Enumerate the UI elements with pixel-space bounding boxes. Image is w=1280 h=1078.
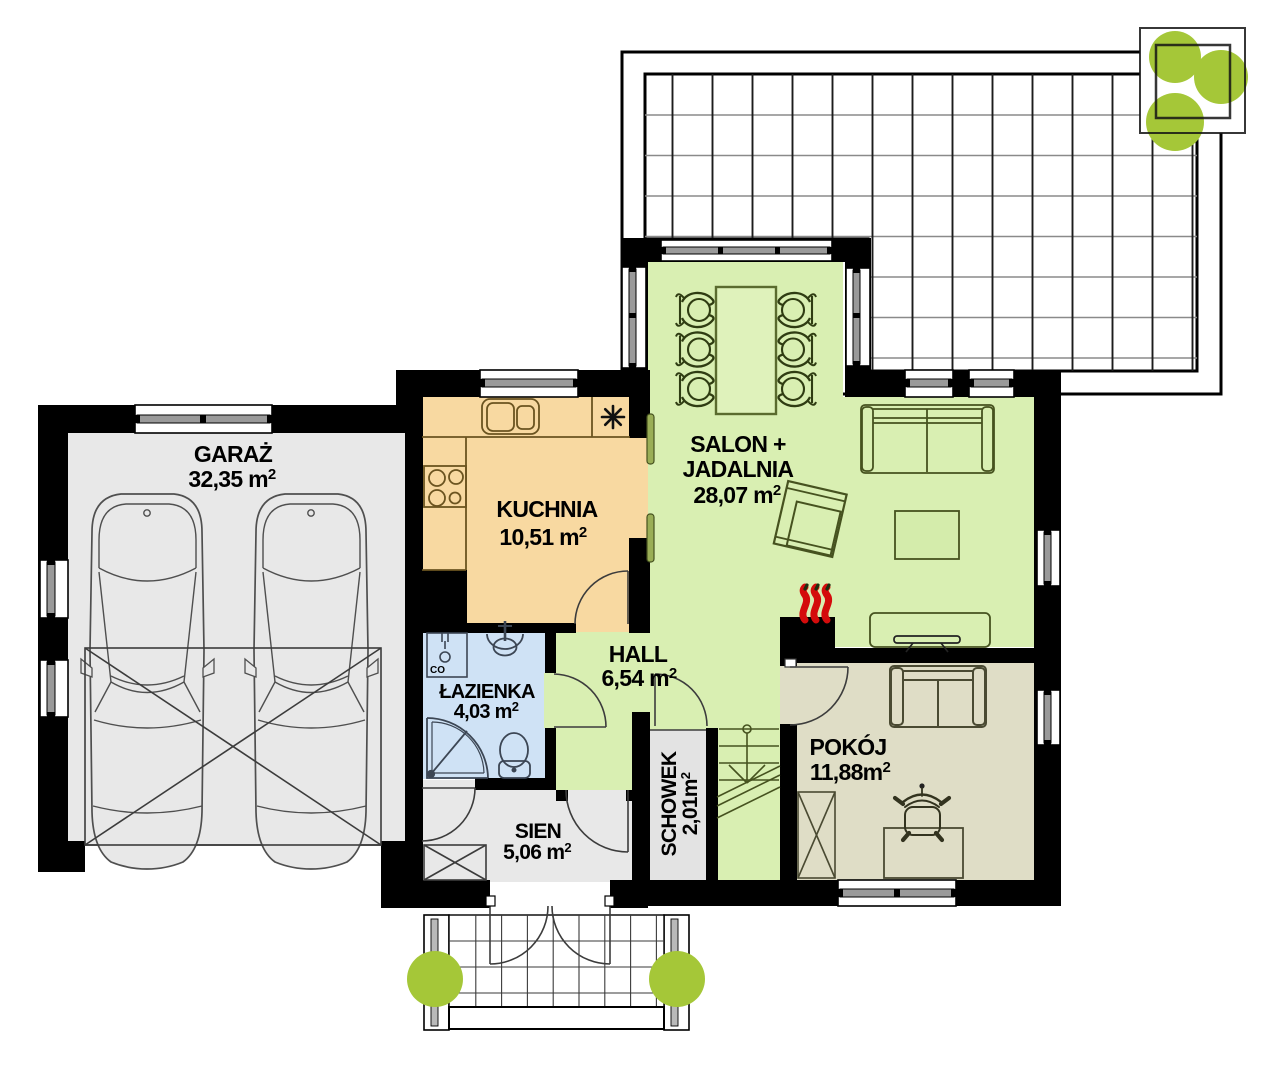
svg-text:SIEN: SIEN [515, 820, 561, 843]
svg-text:6,54 m2: 6,54 m2 [601, 665, 676, 691]
svg-text:SCHOWEK: SCHOWEK [658, 751, 681, 856]
svg-text:CO: CO [430, 665, 445, 676]
svg-text:32,35 m2: 32,35 m2 [188, 466, 276, 492]
svg-text:28,07 m2: 28,07 m2 [693, 482, 781, 508]
svg-text:2,01m2: 2,01m2 [678, 772, 702, 835]
svg-text:JADALNIA: JADALNIA [683, 456, 794, 482]
svg-text:11,88m2: 11,88m2 [810, 759, 891, 785]
svg-text:GARAŻ: GARAŻ [194, 441, 273, 467]
svg-text:KUCHNIA: KUCHNIA [496, 496, 597, 522]
svg-text:ŁAZIENKA: ŁAZIENKA [439, 681, 535, 703]
svg-text:5,06 m2: 5,06 m2 [503, 840, 571, 864]
svg-text:POKÓJ: POKÓJ [809, 733, 886, 760]
svg-text:10,51 m2: 10,51 m2 [499, 524, 587, 550]
svg-text:4,03 m2: 4,03 m2 [454, 699, 519, 723]
svg-text:HALL: HALL [609, 641, 668, 667]
svg-text:SALON +: SALON + [690, 431, 786, 457]
